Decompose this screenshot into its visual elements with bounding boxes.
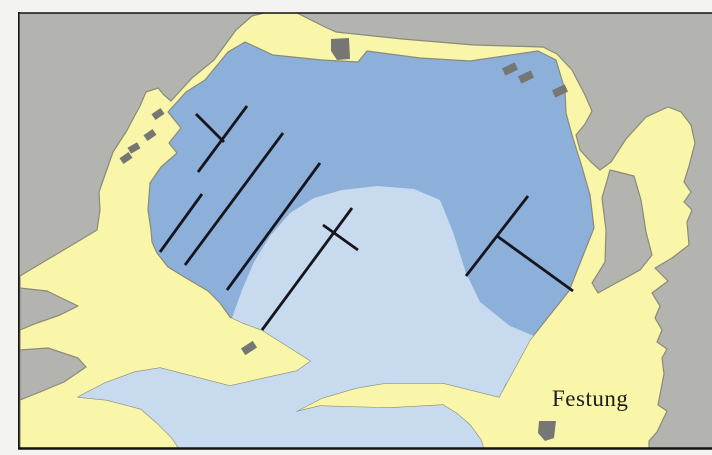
map-layers bbox=[18, 13, 712, 450]
harbor-map: Festung bbox=[0, 0, 712, 455]
harbor-map-svg: Festung bbox=[0, 0, 712, 455]
festung-label: Festung bbox=[552, 386, 628, 411]
